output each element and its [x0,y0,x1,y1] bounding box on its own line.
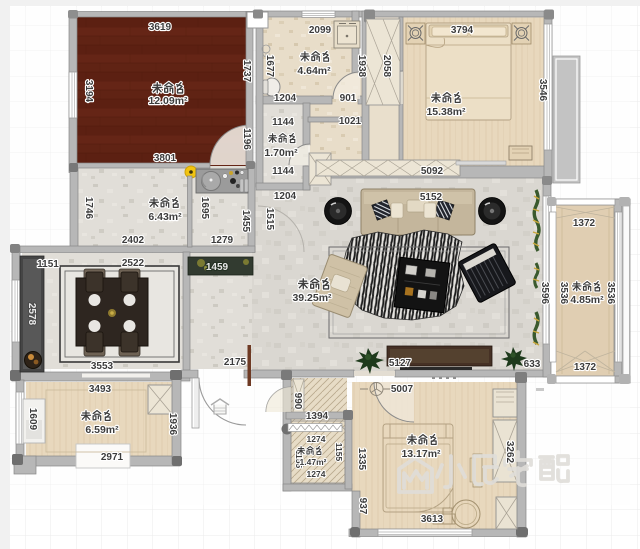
svg-text:1204: 1204 [274,93,297,104]
svg-text:3493: 3493 [89,384,112,395]
svg-text:1459: 1459 [206,262,229,273]
svg-text:1746: 1746 [83,197,94,220]
svg-text:1196: 1196 [241,128,252,150]
svg-text:1279: 1279 [211,235,234,246]
svg-text:1144: 1144 [272,166,294,177]
svg-text:1274: 1274 [307,469,326,479]
svg-text:1204: 1204 [274,191,297,202]
svg-text:1.47m²: 1.47m² [300,457,327,467]
svg-text:1938: 1938 [356,55,367,78]
svg-text:5152: 5152 [420,192,443,203]
svg-text:6.43m²: 6.43m² [148,211,182,223]
svg-text:1737: 1737 [241,60,252,83]
svg-text:3596: 3596 [539,282,550,305]
svg-text:1335: 1335 [356,448,367,471]
svg-text:2099: 2099 [309,25,332,36]
svg-text:3613: 3613 [421,514,444,525]
svg-text:3194: 3194 [83,80,94,103]
svg-text:12.09m²: 12.09m² [148,95,188,107]
svg-text:1372: 1372 [573,218,596,229]
svg-text:4.85m²: 4.85m² [570,294,604,306]
svg-text:1021: 1021 [339,116,362,127]
svg-text:3794: 3794 [451,25,474,36]
svg-text:4.64m²: 4.64m² [297,65,331,77]
svg-text:5092: 5092 [421,166,444,177]
svg-text:1372: 1372 [574,362,597,373]
svg-text:5007: 5007 [391,384,414,395]
svg-text:3546: 3546 [537,79,548,102]
svg-text:901: 901 [340,93,357,104]
svg-text:1394: 1394 [306,411,329,422]
svg-text:1677: 1677 [264,55,275,78]
svg-text:1695: 1695 [199,197,210,220]
svg-text:1936: 1936 [167,413,178,436]
svg-text:3536: 3536 [605,282,616,305]
svg-text:1515: 1515 [264,208,275,231]
svg-text:3553: 3553 [91,361,114,372]
svg-text:2578: 2578 [26,303,37,326]
svg-text:1455: 1455 [240,210,251,233]
svg-text:2522: 2522 [122,258,145,269]
svg-text:2402: 2402 [122,235,145,246]
svg-text:1144: 1144 [272,117,294,128]
svg-text:15.38m²: 15.38m² [426,106,466,118]
svg-text:2058: 2058 [381,55,392,78]
svg-text:633: 633 [524,359,541,370]
svg-text:937: 937 [357,498,368,515]
svg-text:2175: 2175 [224,357,247,368]
svg-text:990: 990 [292,393,303,410]
svg-text:1609: 1609 [27,408,38,431]
svg-text:3619: 3619 [149,22,172,33]
svg-text:2971: 2971 [101,452,124,463]
svg-text:39.25m²: 39.25m² [292,292,332,304]
svg-text:1155: 1155 [334,443,344,462]
svg-text:3801: 3801 [154,153,177,164]
svg-text:3262: 3262 [504,441,515,464]
svg-text:5127: 5127 [389,358,412,369]
svg-text:3536: 3536 [558,282,569,305]
svg-text:13.17m²: 13.17m² [401,448,441,460]
svg-text:6.59m²: 6.59m² [85,424,119,436]
svg-text:1151: 1151 [37,259,59,270]
svg-text:1.70m²: 1.70m² [264,147,298,159]
svg-text:1274: 1274 [307,434,326,444]
